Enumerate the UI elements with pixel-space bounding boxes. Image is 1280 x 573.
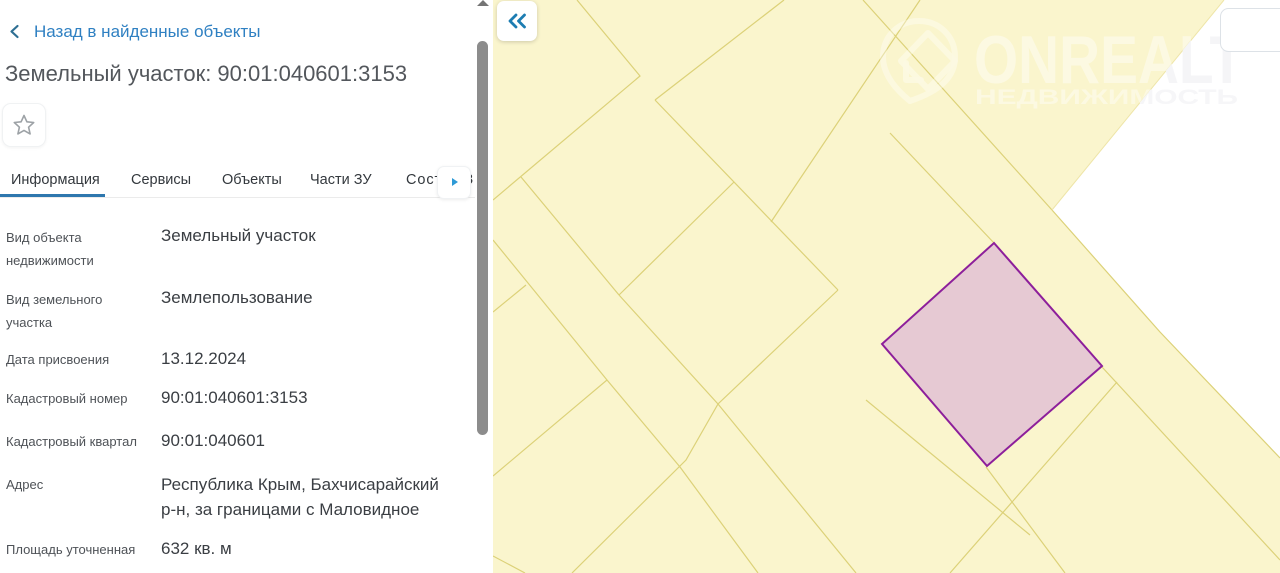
svg-text:НЕДВИЖИМОСТЬ: НЕДВИЖИМОСТЬ: [975, 86, 1238, 109]
